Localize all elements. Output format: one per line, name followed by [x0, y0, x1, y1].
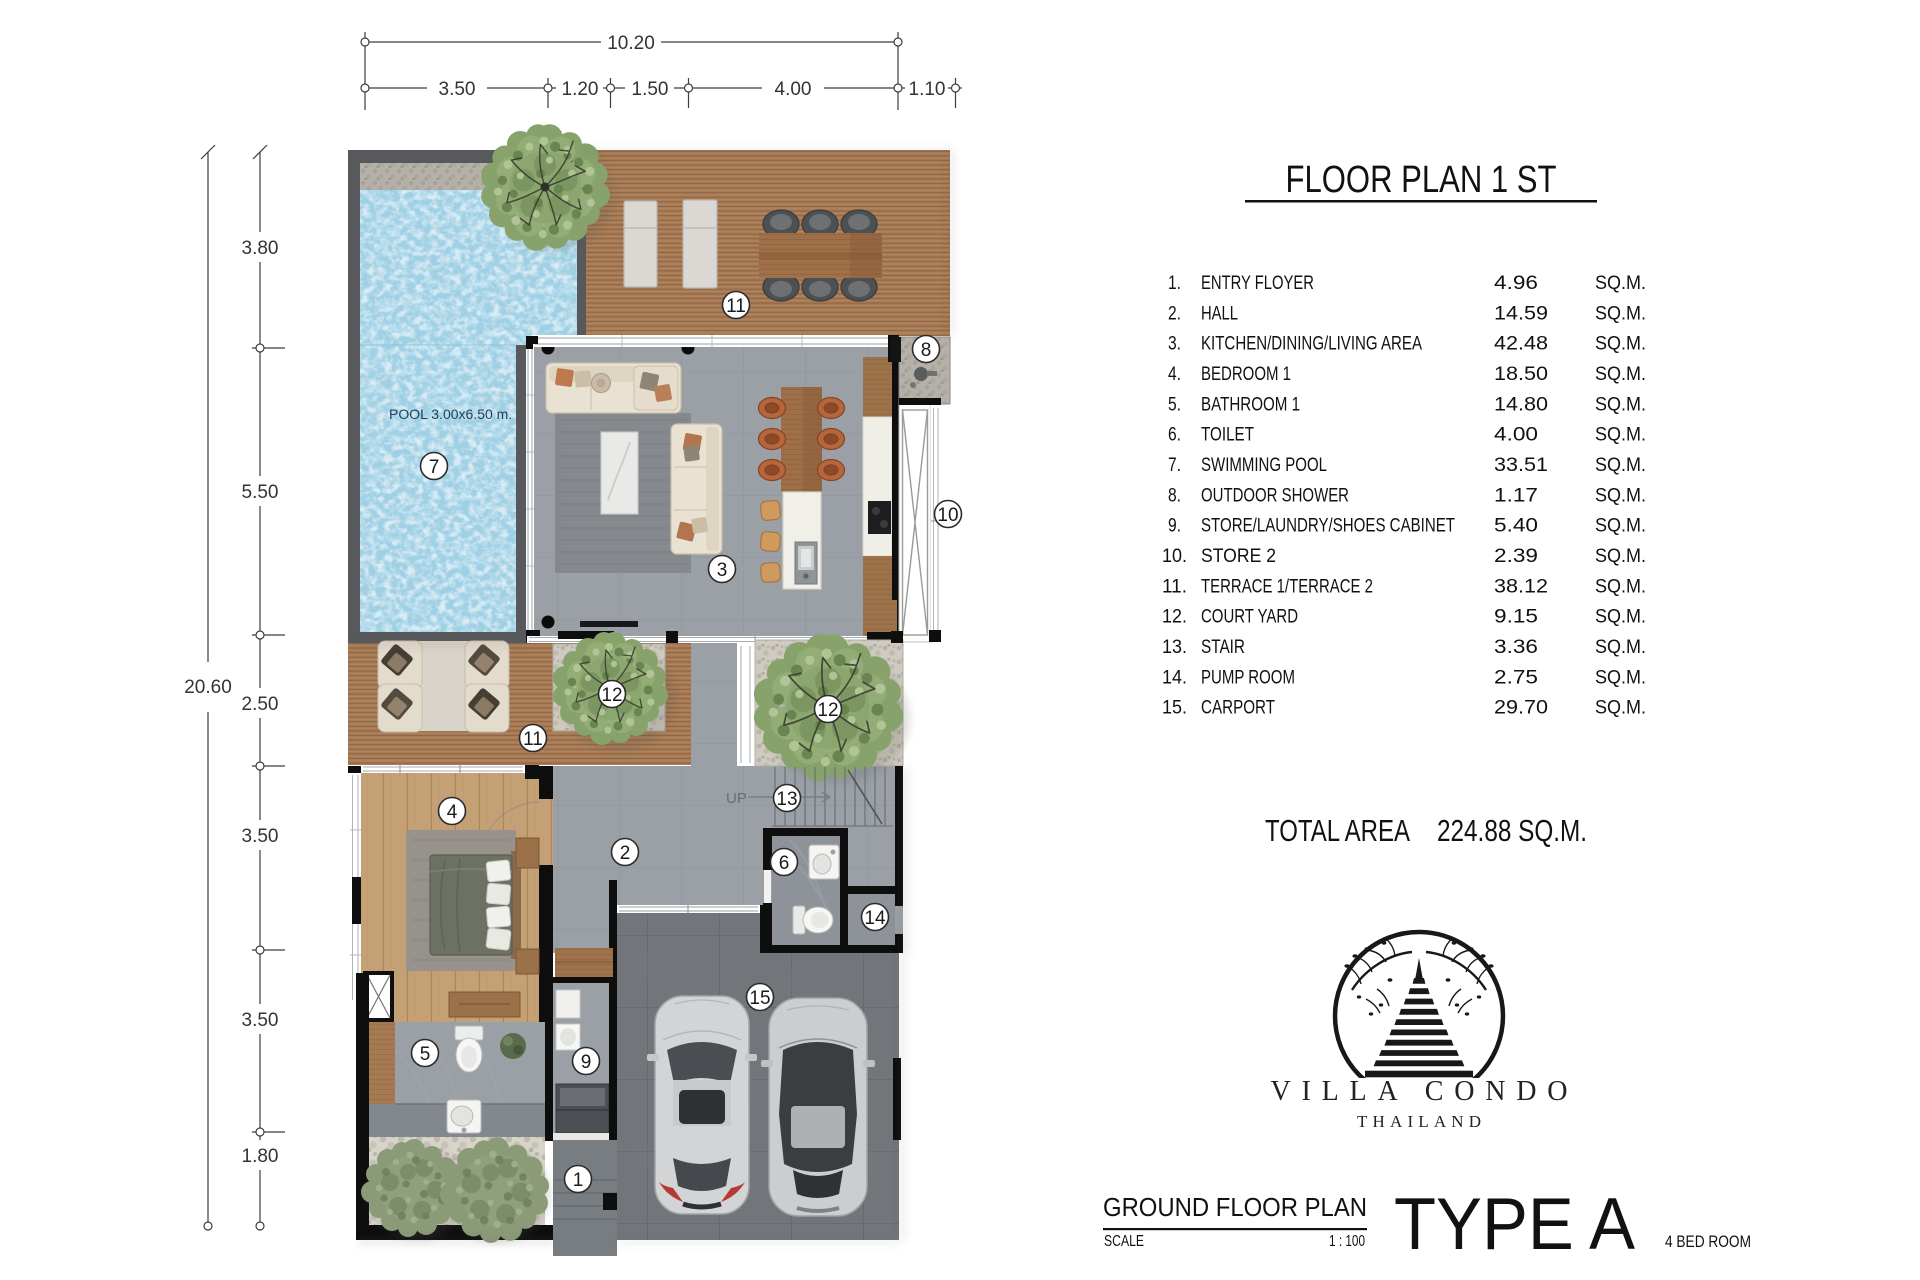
svg-text:PUMP ROOM: PUMP ROOM [1201, 666, 1295, 688]
svg-text:SQ.M.: SQ.M. [1595, 454, 1646, 476]
svg-text:6.: 6. [1168, 424, 1181, 446]
svg-text:2.39: 2.39 [1494, 545, 1538, 567]
svg-text:3.50: 3.50 [242, 1010, 279, 1031]
svg-text:42.48: 42.48 [1494, 333, 1548, 355]
svg-text:SQ.M.: SQ.M. [1595, 636, 1646, 658]
svg-text:2.50: 2.50 [242, 694, 279, 715]
svg-text:14.59: 14.59 [1494, 302, 1548, 324]
svg-text:14: 14 [864, 908, 886, 929]
svg-text:12.: 12. [1162, 606, 1187, 628]
svg-text:ENTRY FLOYER: ENTRY FLOYER [1201, 272, 1314, 294]
svg-text:BEDROOM 1: BEDROOM 1 [1201, 363, 1291, 385]
svg-text:2.: 2. [1168, 302, 1181, 324]
svg-text:1.: 1. [1168, 272, 1181, 294]
svg-text:6: 6 [779, 853, 790, 874]
svg-text:1.17: 1.17 [1494, 484, 1538, 506]
svg-text:9: 9 [581, 1052, 592, 1073]
svg-text:BATHROOM 1: BATHROOM 1 [1201, 393, 1300, 415]
svg-text:POOL 3.00x6.50 m.: POOL 3.00x6.50 m. [389, 406, 512, 422]
svg-text:1.20: 1.20 [562, 79, 599, 100]
svg-text:SQ.M.: SQ.M. [1595, 363, 1646, 385]
svg-text:224.88 SQ.M.: 224.88 SQ.M. [1437, 813, 1587, 848]
svg-text:OUTDOOR SHOWER: OUTDOOR SHOWER [1201, 484, 1349, 506]
svg-text:THAILAND: THAILAND [1357, 1112, 1481, 1131]
svg-text:CARPORT: CARPORT [1201, 697, 1275, 719]
svg-text:13: 13 [776, 789, 797, 810]
svg-text:TYPE A: TYPE A [1394, 1184, 1635, 1265]
svg-text:STORE/LAUNDRY/SHOES CABINET: STORE/LAUNDRY/SHOES CABINET [1201, 515, 1455, 537]
svg-text:SQ.M.: SQ.M. [1595, 302, 1646, 324]
svg-text:STAIR: STAIR [1201, 636, 1245, 658]
svg-text:2.75: 2.75 [1494, 666, 1538, 688]
svg-text:5.50: 5.50 [242, 482, 279, 503]
svg-text:5.: 5. [1168, 393, 1181, 415]
svg-text:SQ.M.: SQ.M. [1595, 272, 1646, 294]
svg-text:SQ.M.: SQ.M. [1595, 515, 1646, 537]
svg-text:15.: 15. [1162, 697, 1187, 719]
svg-text:SCALE: SCALE [1104, 1233, 1144, 1250]
svg-text:5.40: 5.40 [1494, 515, 1538, 537]
svg-text:1 : 100: 1 : 100 [1329, 1233, 1365, 1250]
svg-text:9.15: 9.15 [1494, 606, 1538, 628]
svg-text:10: 10 [937, 505, 958, 526]
svg-text:SQ.M.: SQ.M. [1595, 484, 1646, 506]
svg-text:SQ.M.: SQ.M. [1595, 575, 1646, 597]
svg-text:1: 1 [573, 1170, 584, 1191]
svg-text:2: 2 [620, 843, 631, 864]
svg-text:COURT YARD: COURT YARD [1201, 606, 1298, 628]
svg-text:7.: 7. [1168, 454, 1181, 476]
svg-text:33.51: 33.51 [1494, 454, 1548, 476]
svg-text:20.60: 20.60 [184, 677, 232, 698]
svg-text:1.10: 1.10 [909, 79, 946, 100]
svg-text:3.80: 3.80 [242, 238, 279, 259]
svg-text:TOTAL AREA: TOTAL AREA [1265, 813, 1410, 848]
svg-text:12: 12 [817, 700, 838, 721]
svg-text:29.70: 29.70 [1494, 697, 1548, 719]
svg-text:TERRACE 1/TERRACE 2: TERRACE 1/TERRACE 2 [1201, 575, 1373, 597]
svg-text:8: 8 [921, 340, 932, 361]
svg-text:11: 11 [726, 296, 746, 317]
svg-text:SQ.M.: SQ.M. [1595, 606, 1646, 628]
svg-text:TOILET: TOILET [1201, 424, 1254, 446]
svg-text:18.50: 18.50 [1494, 363, 1548, 385]
svg-text:3: 3 [717, 560, 728, 581]
svg-text:10.: 10. [1162, 545, 1187, 567]
svg-text:STORE 2: STORE 2 [1201, 545, 1276, 567]
svg-text:HALL: HALL [1201, 302, 1238, 324]
svg-text:SQ.M.: SQ.M. [1595, 666, 1646, 688]
svg-text:SQ.M.: SQ.M. [1595, 393, 1646, 415]
svg-text:UP: UP [726, 790, 747, 807]
svg-text:4.96: 4.96 [1494, 272, 1538, 294]
svg-text:1.80: 1.80 [242, 1146, 279, 1167]
svg-text:14.80: 14.80 [1494, 393, 1548, 415]
svg-text:9.: 9. [1168, 515, 1181, 537]
svg-text:15: 15 [749, 988, 770, 1009]
svg-text:11.: 11. [1162, 575, 1187, 597]
svg-text:SQ.M.: SQ.M. [1595, 545, 1646, 567]
svg-text:11: 11 [523, 729, 543, 750]
svg-text:4.: 4. [1168, 363, 1181, 385]
svg-text:4 BED ROOM: 4 BED ROOM [1665, 1232, 1751, 1251]
svg-text:7: 7 [429, 457, 440, 478]
svg-text:KITCHEN/DINING/LIVING AREA: KITCHEN/DINING/LIVING AREA [1201, 333, 1422, 355]
svg-text:3.: 3. [1168, 333, 1181, 355]
svg-text:5: 5 [420, 1044, 431, 1065]
svg-text:1.50: 1.50 [632, 79, 669, 100]
svg-text:SWIMMING POOL: SWIMMING POOL [1201, 454, 1327, 476]
svg-text:SQ.M.: SQ.M. [1595, 333, 1646, 355]
svg-text:14.: 14. [1162, 666, 1187, 688]
svg-text:GROUND FLOOR PLAN: GROUND FLOOR PLAN [1103, 1192, 1367, 1222]
svg-text:12: 12 [601, 685, 622, 706]
svg-text:3.50: 3.50 [439, 79, 476, 100]
svg-text:3.36: 3.36 [1494, 636, 1538, 658]
svg-text:38.12: 38.12 [1494, 575, 1548, 597]
svg-text:4: 4 [447, 802, 458, 823]
svg-text:SQ.M.: SQ.M. [1595, 424, 1646, 446]
svg-text:10.20: 10.20 [607, 33, 655, 54]
svg-text:4.00: 4.00 [775, 79, 812, 100]
svg-text:3.50: 3.50 [242, 826, 279, 847]
svg-text:4.00: 4.00 [1494, 424, 1538, 446]
svg-text:8.: 8. [1168, 484, 1181, 506]
svg-text:13.: 13. [1162, 636, 1187, 658]
svg-text:FLOOR PLAN 1 ST: FLOOR PLAN 1 ST [1286, 159, 1557, 201]
svg-text:SQ.M.: SQ.M. [1595, 697, 1646, 719]
